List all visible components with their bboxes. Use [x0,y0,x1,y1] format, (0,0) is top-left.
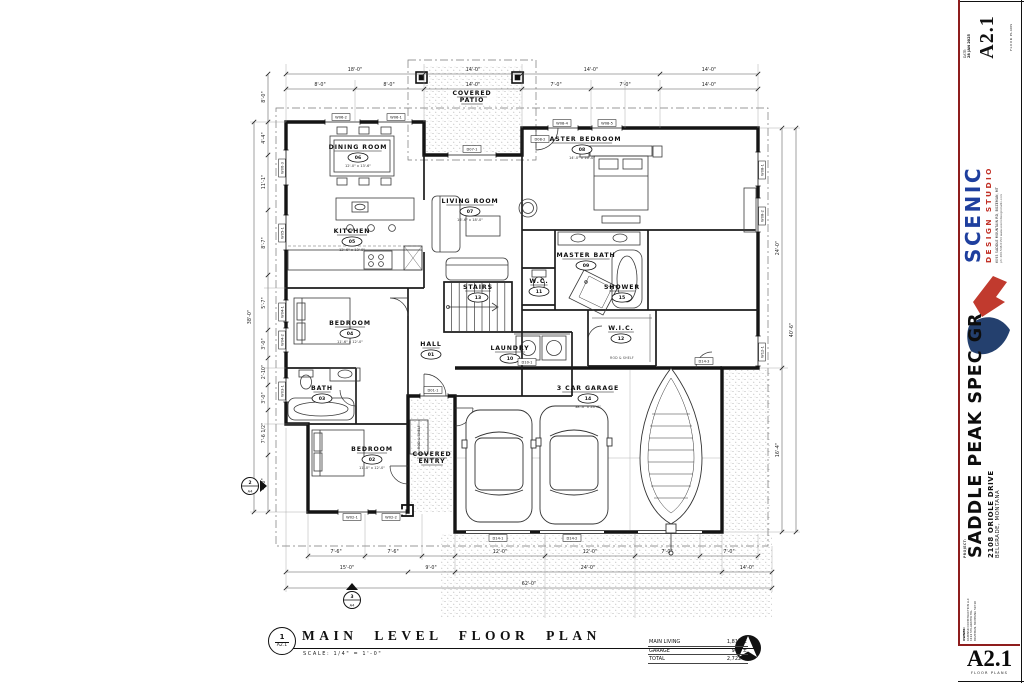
room-label: STAIRS [463,284,493,291]
dim-label: 5'-7" [261,297,267,308]
wd-tag: D14-2 [563,535,581,542]
area-value: 904 ± [732,648,747,654]
area-label: MAIN LIVING [649,639,680,645]
dim-label: 7'-6" [387,549,398,555]
floor-plan-canvas: DINING ROOM0612'-0" x 13'-6"KITCHEN0512'… [0,0,958,683]
dim-label: 7'-0" [661,549,672,555]
area-row: GARAGE 904 ± [648,648,748,656]
car-top-view [462,410,536,522]
sheet-number: A2.1 [958,647,1021,670]
wd-tag-label: W02-2 [385,515,397,519]
room-label: BEDROOM [351,446,393,453]
room-tag: 02 [369,457,375,463]
section-number: 2 [248,480,251,486]
room-tag: 14 [585,396,591,402]
wd-tag: W02-2 [382,514,400,521]
room-label: PATIO [460,97,485,104]
wd-tag: W05-1 [279,224,286,242]
dim-label: 8'-0" [383,82,394,88]
room-tag: 12 [618,336,624,342]
section-markers: 2A43A4 [242,478,361,609]
wd-tag: W03-1 [279,382,286,400]
room-dimension: 12'-0" x 13'-6" [345,164,371,168]
wd-tag: W06-3 [279,159,286,177]
dim-label: 12'-0" [493,549,507,555]
room-dimension: 11'-6" x 12'-0" [337,340,363,344]
dim-label: 14'-0" [702,82,716,88]
room-label: DINING ROOM [329,144,388,151]
titleblock-red-rule-vertical [958,0,960,646]
room-tag: 05 [349,239,355,245]
dim-label: 3'-0" [261,338,267,349]
dim-label: 24'-0" [775,241,781,255]
room-tag: 13 [475,295,481,301]
studio-contact: ph: 406.548.6154 www.scenicdesignstudio.… [999,130,1003,263]
wd-tag: D07-1 [463,146,481,153]
project-block: PROJECT: SADDLE PEAK SPEC GR 2108 ORIOLE… [963,260,1001,558]
wd-tag-label: W06-3 [280,162,284,174]
area-value: 2,722 ± [727,656,747,662]
dim-label: 3'-0" [261,392,267,403]
room-label: BEDROOM [329,320,371,327]
sheet-border-right [1021,0,1023,683]
dim-label: 16'-4" [775,443,781,457]
owner-block: OWNER: KAMINSKI CONSTRUCTION LLC 1114 ST… [963,565,977,641]
area-label: TOTAL [649,656,665,662]
dim-label: 9'-0" [425,565,436,571]
room-dimension: 38'-0" x 24'-0" [575,405,601,409]
detail-marker: 1 A2.1 [268,627,296,655]
room-tag: 03 [319,396,325,402]
sheet-name-top: FLOOR PLANS [1009,12,1013,62]
wd-tag-label: W04-2 [280,334,284,346]
dim-label: 14'-0" [466,82,480,88]
dim-label: 62'-0" [522,581,536,587]
dim-label: 8'-0" [314,82,325,88]
dim-label: 14'-0" [584,67,598,73]
wd-tag: W12-1 [759,343,766,361]
wd-tag-label: D08-2 [535,137,546,141]
studio-tagline: DESIGN STUDIO [984,130,993,263]
dim-label: 24'-0" [581,565,595,571]
wd-tag-label: W08-1 [760,164,764,176]
studio-block: SCENIC DESIGN STUDIO 6093 SADDLE MOUNTAI… [963,130,1003,263]
dim-label: 14'-0" [466,67,480,73]
room-label: BATH [311,385,333,392]
wd-tag-label: D01-1 [428,388,439,392]
wd-tag-label: D10-1 [522,360,533,364]
wd-tag: W08-4 [553,120,571,127]
wd-tag-label: W08-2 [760,210,764,222]
dim-label: 11'-1" [261,175,267,189]
dim-label: 4'-4" [261,132,267,143]
wd-tag-label: D07-1 [467,147,478,151]
room-tag: 04 [347,331,353,337]
studio-address: 6093 SADDLE MOUNTAIN RD, BOZEMAN, MT [995,130,999,263]
dim-label: 15'-0" [340,565,354,571]
dim-label: 8'-7" [261,237,267,248]
room-dimension: 14'-0" x 16'-0" [569,156,595,160]
area-row: TOTAL 2,722 ± [648,656,748,664]
room-label: LAUNDRY [490,345,529,352]
room-label: MASTER BEDROOM [543,136,622,143]
room-tag: 09 [583,263,589,269]
dim-label: 14'-0" [702,67,716,73]
project-name: SADDLE PEAK SPEC GR [967,260,985,558]
wd-tag-label: D14-3 [699,359,710,363]
wd-tag: W06-2 [332,114,350,121]
wd-tag-label: W12-1 [760,346,764,358]
room-tag: 08 [579,147,585,153]
wd-tag-label: W08-5 [601,121,613,125]
studio-name: SCENIC [963,130,983,263]
wd-tag-label: W05-1 [280,227,284,239]
room-label: HALL [420,341,441,348]
area-label: GARAGE [649,648,670,654]
dim-label: 2'-10" [261,365,267,379]
dim-label: 14'-0" [740,565,754,571]
owner-line: BOZEMAN, MONTANA 59718 [974,565,977,641]
wd-tag: W04-1 [279,303,286,321]
wd-tag: D08-2 [531,136,549,143]
section-marker: 3A4 [344,583,361,609]
room-tag: 11 [536,289,542,295]
wd-tag-label: W06-2 [335,115,347,119]
plan-note: ROD & SHELF [610,356,634,360]
sheet-number-bottom-block: A2.1 FLOOR PLANS [958,647,1021,675]
dim-label: 8'-0" [261,91,267,102]
area-table: MAIN LIVING 1,818 ± GARAGE 904 ± TOTAL 2… [648,639,748,665]
sheet-border-bottom [958,681,1024,682]
dim-label: 7'-0" [723,549,734,555]
room-label: COVERED [412,451,451,458]
wd-tag: W08-2 [759,207,766,225]
date-value: 28 JAN 2025 [967,12,971,58]
room-tag: 07 [467,209,473,215]
wd-tag-label: W06-1 [390,115,402,119]
room-dimension: 12'-6" x 13'-0" [339,248,365,252]
section-sheet: A4 [350,603,355,607]
wd-tag: D01-1 [424,387,442,394]
boat-top-view [640,368,702,555]
section-sheet: A4 [248,489,253,493]
car-top-view [536,406,612,524]
wd-tag-label: W04-1 [280,306,284,318]
wd-tag: D14-1 [489,535,507,542]
room-label: 3 CAR GARAGE [557,385,619,392]
room-label: KITCHEN [334,228,371,235]
area-row: MAIN LIVING 1,818 ± [648,639,748,647]
plan-note: ROD & SHELF [417,425,421,449]
sheet-border-top [958,1,1024,2]
wd-tag: D14-3 [695,358,713,365]
room-tag: 10 [507,356,513,362]
area-value: 1,818 ± [727,639,747,645]
room-dimension: 11'-0" x 12'-0" [359,466,385,470]
room-tag: 01 [428,352,434,358]
dim-label: 7'-0" [619,82,630,88]
section-number: 3 [350,594,353,600]
date-block: DATE: 28 JAN 2025 [963,12,971,58]
dim-label: 18'-0" [348,67,362,73]
room-label: W.I.C. [608,325,634,332]
dim-label: 40'-6" [789,323,795,337]
dim-label: 7'-6 1/2" [261,423,267,444]
wd-tag-label: D14-2 [567,536,578,540]
project-city: BELGRADE, MONTANA [995,260,1001,558]
wd-tag: W08-1 [759,161,766,179]
detail-number: 1 [280,634,285,642]
wd-tag-label: D14-1 [493,536,504,540]
plan-scale: SCALE: 1/4" = 1'-0" [303,651,382,657]
room-label: COVERED [452,90,491,97]
room-label: W.C. [529,278,548,285]
room-tag: 06 [355,155,361,161]
detail-sheet: A2.1 [275,642,289,648]
project-address: 2108 ORIOLE DRIVE [987,260,995,558]
room-tag: 15 [619,295,625,301]
wd-tag: W06-1 [387,114,405,121]
dim-label: 38'-0" [247,310,253,324]
wd-tag: W02-1 [343,514,361,521]
wd-tag-label: W08-4 [556,121,568,125]
wd-tag-label: W03-1 [280,385,284,397]
dim-label: 7'-0" [550,82,561,88]
dim-label: 7'-6" [330,549,341,555]
room-dimension: 16'-6" x 18'-0" [457,218,483,222]
wd-tag: D10-1 [518,359,536,366]
plan-title: MAIN LEVEL FLOOR PLAN [302,628,601,644]
wd-tag: W08-5 [598,120,616,127]
section-arrow [346,583,358,590]
room-label: SHOWER [604,284,640,291]
room-label: ENTRY [418,458,445,465]
sheet-number-top: A2.1 [976,12,999,62]
wd-tag-label: W02-1 [346,515,358,519]
room-label: LIVING ROOM [441,198,498,205]
dim-label: 12'-0" [583,549,597,555]
room-label: MASTER BATH [556,252,615,259]
sheet-name: FLOOR PLANS [958,671,1021,675]
wd-tag: W04-2 [279,331,286,349]
